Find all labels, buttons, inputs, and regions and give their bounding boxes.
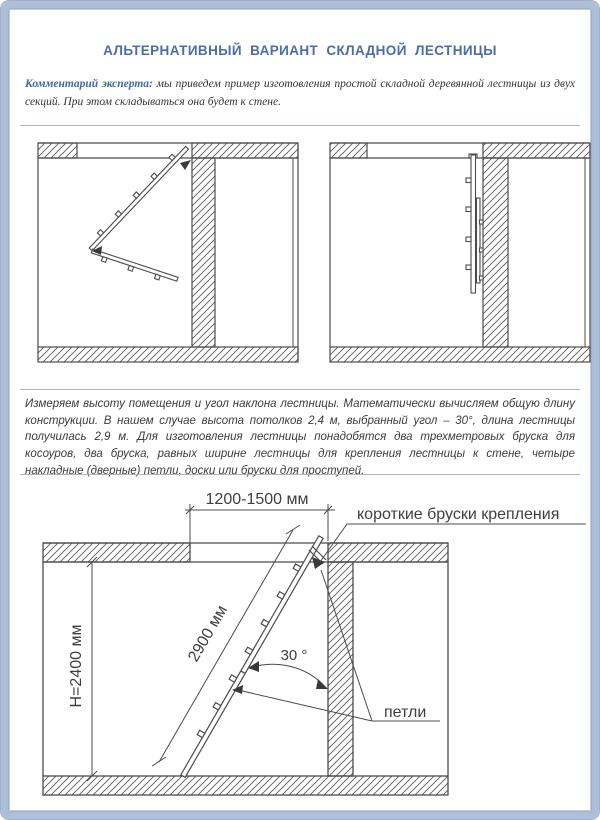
hinges-label: петли <box>384 704 426 721</box>
ceiling-hatch-left <box>330 143 367 158</box>
width-dimension-label: 1200-1500 мм <box>206 491 309 508</box>
expert-comment-label: Комментарий эксперта: <box>25 78 153 90</box>
ceiling-hatch-right <box>192 143 298 158</box>
angle-label: 30 ° <box>281 647 308 664</box>
ladder-folded <box>466 154 483 293</box>
length-dimension-label: 2900 мм <box>185 603 231 665</box>
mount-bars-label: короткие бруски крепления <box>357 506 559 523</box>
floor <box>43 776 448 795</box>
body-paragraph: Измеряем высоту помещения и угол наклона… <box>25 396 575 479</box>
ceiling-hatch-left <box>43 543 190 562</box>
height-dimension <box>87 557 97 781</box>
angle-arc <box>256 664 324 686</box>
section-divider <box>20 474 580 475</box>
top-hinge-arrow <box>180 160 191 170</box>
figure-dimensioned-drawing: 1200-1500 мм Н=2400 мм 2900 мм 30 ° петл… <box>10 480 600 815</box>
center-wall <box>192 158 215 347</box>
ceiling-hatch-right <box>328 543 448 562</box>
ceiling-hatch-right <box>483 143 590 158</box>
section-divider <box>20 125 580 126</box>
ladder-lower-section <box>90 249 178 285</box>
width-dimension <box>185 504 335 543</box>
section-divider <box>20 389 580 390</box>
ceiling-hatch-left <box>38 143 77 158</box>
page-content: АЛЬТЕРНАТИВНЫЙ ВАРИАНТ СКЛАДНОЙ ЛЕСТНИЦЫ… <box>9 9 591 811</box>
center-wall <box>328 562 353 776</box>
angle-arrow-right <box>316 679 328 689</box>
article-page: { "colors": { "frame": "#aec0da", "frame… <box>0 0 600 820</box>
page-title: АЛЬТЕРНАТИВНЫЙ ВАРИАНТ СКЛАДНОЙ ЛЕСТНИЦЫ <box>30 43 570 58</box>
height-dimension-label: Н=2400 мм <box>68 625 85 708</box>
floor <box>38 347 298 362</box>
figure-folding-sequence <box>10 130 600 380</box>
center-wall <box>483 158 508 347</box>
room-section-folded <box>330 143 590 362</box>
expert-comment: Комментарий эксперта: мы приведем пример… <box>25 76 575 112</box>
room-section-unfolded <box>38 143 298 362</box>
floor <box>330 347 590 362</box>
ladder-upper-section <box>86 143 189 250</box>
